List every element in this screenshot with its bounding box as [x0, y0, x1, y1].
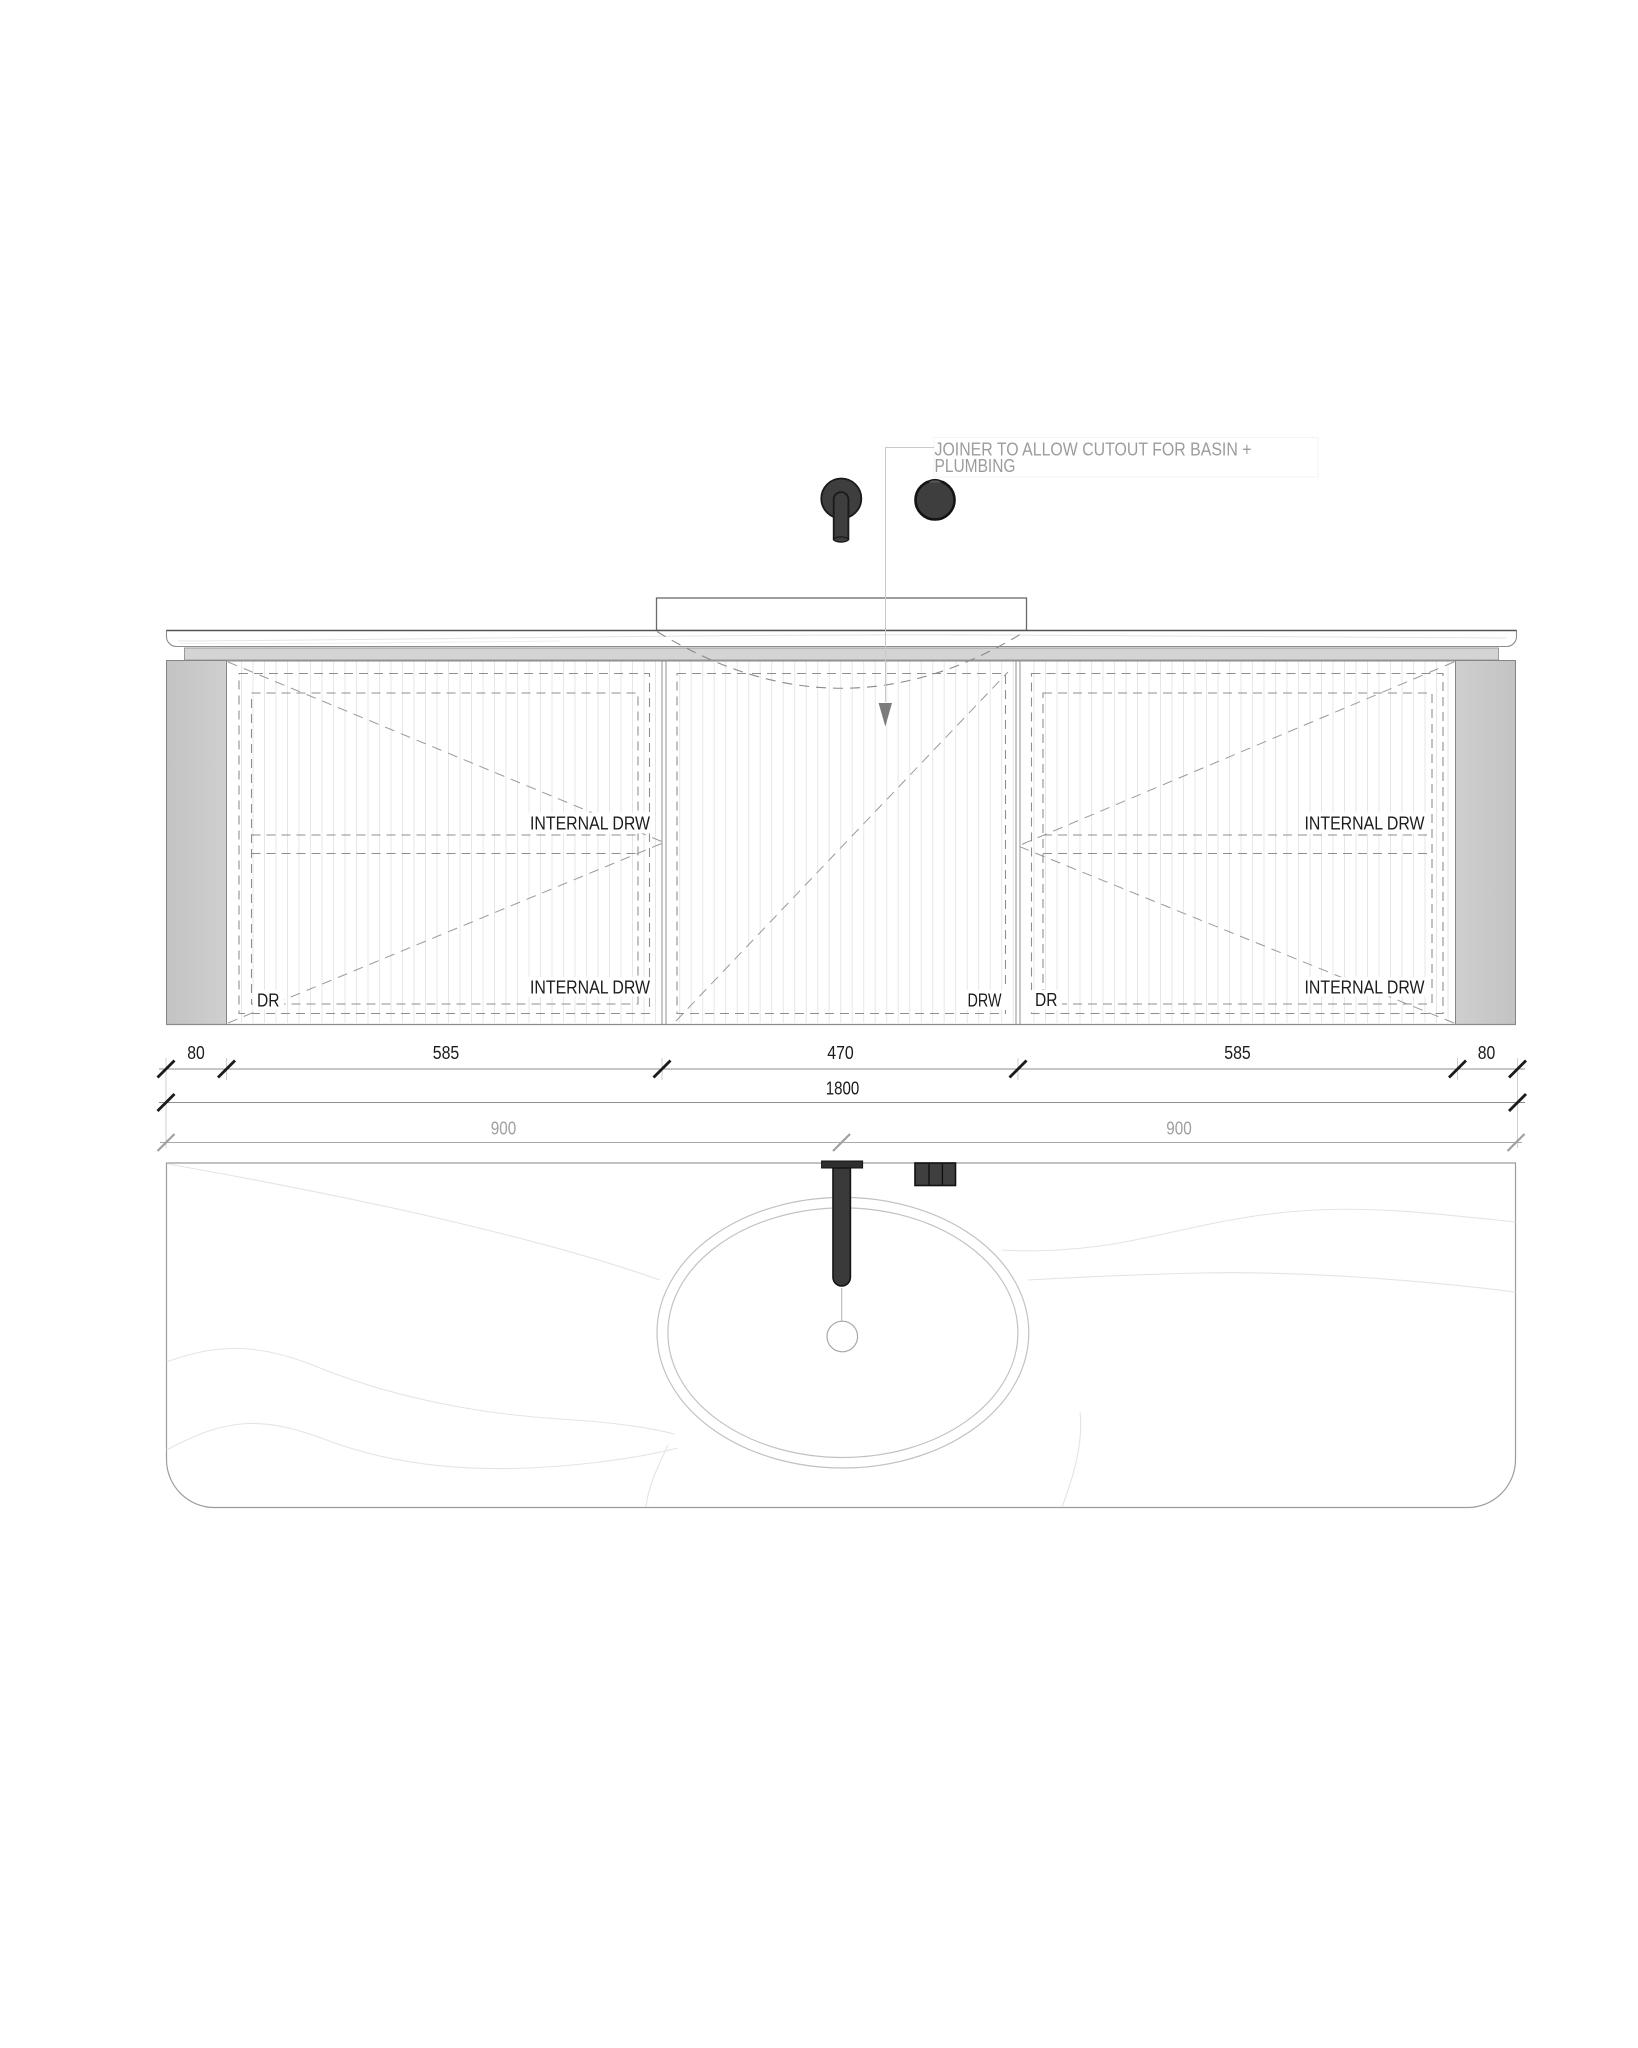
svg-text:900: 900: [1166, 1118, 1192, 1139]
svg-text:1800: 1800: [826, 1078, 860, 1099]
svg-text:DR: DR: [257, 990, 280, 1011]
svg-text:INTERNAL DRW: INTERNAL DRW: [530, 977, 650, 998]
svg-text:INTERNAL DRW: INTERNAL DRW: [530, 813, 650, 834]
svg-text:INTERNAL DRW: INTERNAL DRW: [1305, 813, 1425, 834]
svg-text:80: 80: [187, 1042, 205, 1063]
svg-text:585: 585: [433, 1042, 460, 1063]
svg-text:DR: DR: [1035, 989, 1058, 1010]
svg-text:PLUMBING: PLUMBING: [935, 455, 1016, 476]
svg-text:585: 585: [1224, 1042, 1251, 1063]
svg-text:470: 470: [827, 1042, 854, 1063]
svg-text:900: 900: [491, 1118, 517, 1139]
svg-text:DRW: DRW: [968, 990, 1002, 1011]
svg-text:80: 80: [1478, 1042, 1496, 1063]
svg-text:INTERNAL DRW: INTERNAL DRW: [1305, 977, 1425, 998]
